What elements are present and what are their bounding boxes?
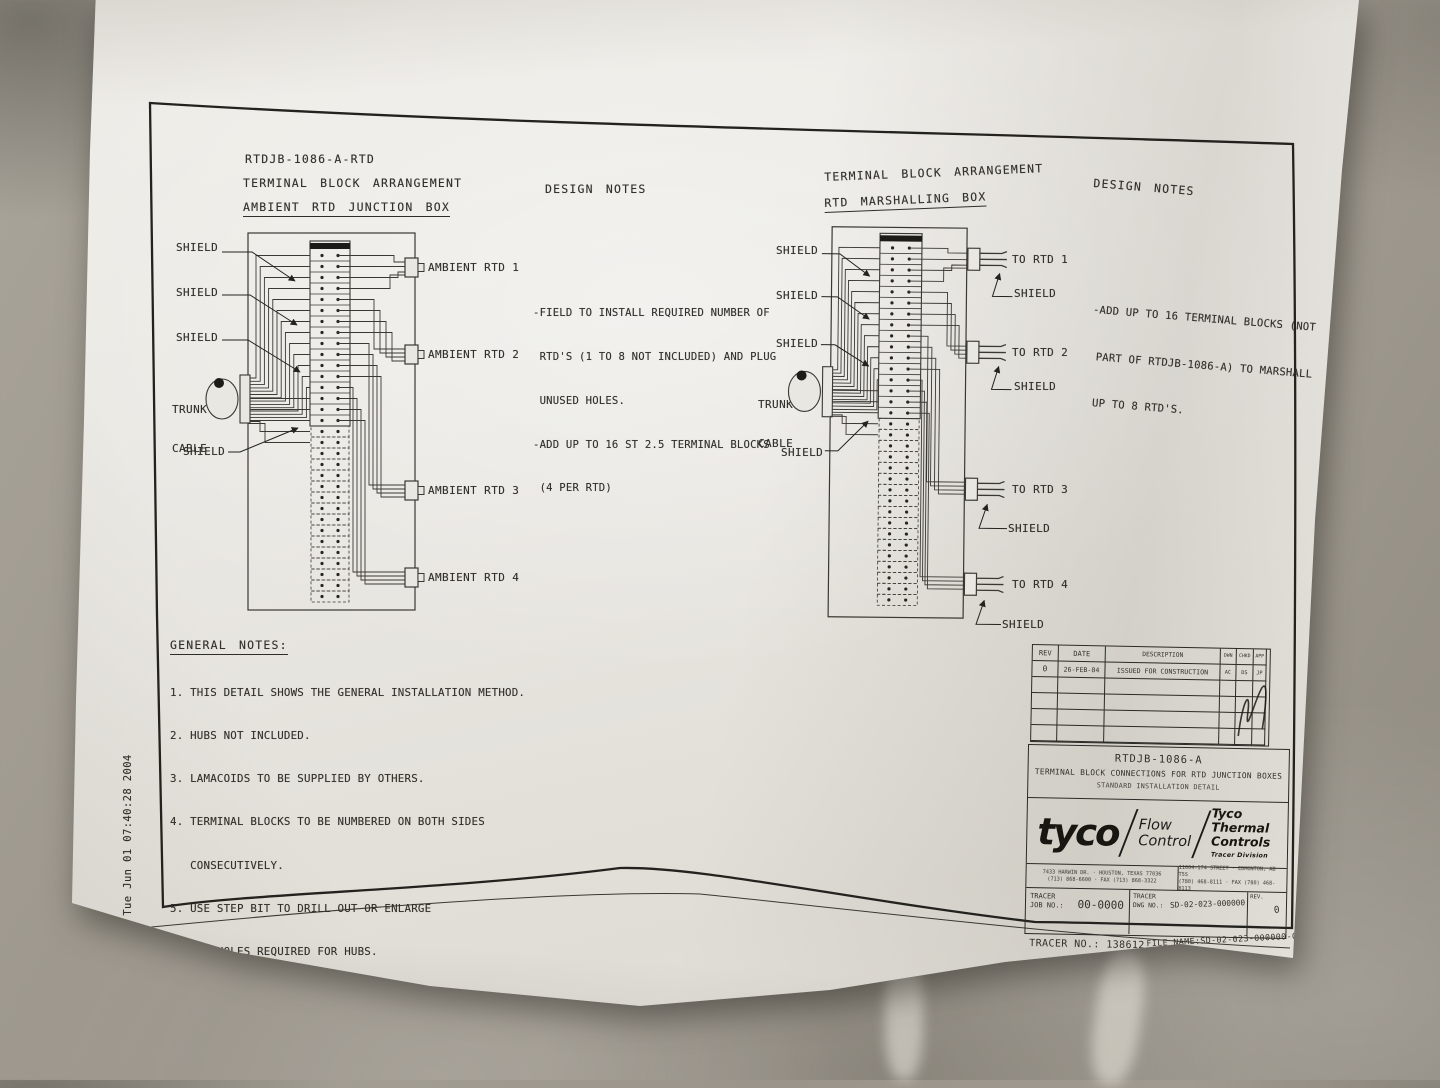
note-line: UNUSED HOLES.	[533, 394, 776, 409]
empty-cell	[1058, 694, 1105, 711]
job-label: TRACER	[1030, 892, 1064, 901]
junction-box-diagram	[160, 225, 530, 625]
note-line: -ADD UP TO 16 ST 2.5 TERMINAL BLOCKS	[533, 438, 776, 453]
general-note-line: 5. USE STEP BIT TO DRILL OUT OR ENLARGE	[170, 902, 525, 916]
left-arrangement-title: TERMINAL BLOCK ARRANGEMENT	[243, 176, 462, 190]
date-header: DATE	[1059, 646, 1106, 663]
rev-value: 0	[1032, 661, 1058, 677]
chkd-header: CHKD	[1237, 649, 1254, 665]
note-line: (4 PER RTD)	[533, 481, 776, 496]
drawing-number: RTDJB-1086-A	[1029, 751, 1289, 768]
tyco-logo: tyco	[1037, 813, 1119, 852]
empty-cell	[1057, 710, 1104, 727]
address-line: (713) 868-6600 · FAX (713) 868-3322	[1047, 876, 1156, 885]
rev-cell-value: 0	[1274, 905, 1281, 916]
empty-cell	[1031, 709, 1057, 725]
address-edmonton: 11004-174 STREET · EDMONTON, AB T5S (780…	[1177, 867, 1286, 893]
company-line: Controls	[1211, 835, 1287, 850]
drawing-subtitle: STANDARD INSTALLATION DETAIL	[1028, 780, 1288, 793]
approval-signature-scribble	[1220, 664, 1286, 751]
paper-sheet-shadow: Tue Jun 01 07:40:28 2004 RTDJB-1086-A-RT…	[0, 0, 1440, 1080]
job-row: TRACER JOB NO.: 00-0000 TRACER DWG NO.: …	[1025, 887, 1286, 937]
dwg-label: DWG NO.:	[1133, 902, 1164, 911]
drawing-title: TERMINAL BLOCK CONNECTIONS FOR RTD JUNCT…	[1028, 767, 1288, 781]
plot-timestamp: Tue Jun 01 07:40:28 2004	[122, 754, 134, 915]
company-subline: Tracer Division	[1211, 849, 1287, 864]
logo-divider	[1118, 809, 1138, 857]
rev-header: REV	[1033, 645, 1059, 661]
empty-cell	[1058, 678, 1105, 695]
general-notes-list: 1. THIS DETAIL SHOWS THE GENERAL INSTALL…	[170, 657, 525, 988]
logo-row: tyco Flow Control Tyco Thermal Controls …	[1027, 797, 1288, 869]
marshalling-box-diagram	[748, 218, 1152, 652]
paper-sheet: Tue Jun 01 07:40:28 2004 RTDJB-1086-A-RT…	[0, 0, 1440, 1080]
left-design-notes: -FIELD TO INSTALL REQUIRED NUMBER OF RTD…	[533, 277, 776, 525]
tyco-thermal-wordmark: Tyco Thermal Controls Tracer Division	[1211, 807, 1288, 864]
note-line: RTD'S (1 TO 8 NOT INCLUDED) AND PLUG	[533, 350, 776, 365]
date-value: 26-FEB-04	[1058, 662, 1105, 679]
empty-cell	[1032, 693, 1058, 709]
empty-cell	[1104, 726, 1219, 744]
empty-cell	[1031, 725, 1057, 741]
general-note-line: 4. TERMINAL BLOCKS TO BE NUMBERED ON BOT…	[170, 815, 525, 829]
general-note-line: 3. LAMACOIDS TO BE SUPPLIED BY OTHERS.	[170, 772, 525, 786]
general-note-line: ANY HOLES REQUIRED FOR HUBS.	[170, 945, 525, 959]
company-line: Tyco Thermal	[1211, 807, 1288, 836]
rev-cell: REV. 0	[1246, 892, 1286, 937]
left-box-title: AMBIENT RTD JUNCTION BOX	[243, 200, 450, 217]
flow-control-wordmark: Flow Control	[1138, 817, 1191, 850]
tracer-no-footer: TRACER NO.: 138612	[1029, 938, 1145, 951]
job-no-value: 00-0000	[1077, 898, 1124, 912]
dwg-no-value: SD-02-023-000000	[1170, 898, 1245, 909]
empty-cell	[1057, 726, 1104, 743]
left-design-notes-title: DESIGN NOTES	[545, 182, 646, 196]
general-note-line: 2. HUBS NOT INCLUDED.	[170, 729, 525, 743]
rev-cell-label: REV.	[1250, 894, 1264, 900]
dwg-label: TRACER	[1133, 893, 1164, 902]
logo-divider	[1191, 810, 1211, 858]
flow-line: Control	[1138, 833, 1191, 850]
dwn-header: DWN	[1221, 649, 1237, 665]
title-block: REV DATE DESCRIPTION DWN CHKD APP 0 26-F…	[1024, 642, 1293, 959]
note-line: -FIELD TO INSTALL REQUIRED NUMBER OF	[533, 306, 776, 321]
general-note-line: 1. THIS DETAIL SHOWS THE GENERAL INSTALL…	[170, 686, 525, 700]
tracer-dwg-no-cell: TRACER DWG NO.: SD-02-023-000000	[1128, 890, 1247, 936]
general-notes-title: GENERAL NOTES:	[170, 638, 288, 655]
general-note-line: CONSECUTIVELY.	[170, 859, 525, 873]
job-label: JOB NO.:	[1030, 901, 1064, 910]
app-header: APP	[1254, 649, 1267, 665]
left-part-number: RTDJB-1086-A-RTD	[245, 152, 375, 166]
title-block-main: RTDJB-1086-A TERMINAL BLOCK CONNECTIONS …	[1024, 744, 1290, 939]
empty-cell	[1032, 677, 1058, 693]
flow-line: Flow	[1139, 817, 1192, 834]
tracer-job-no-cell: TRACER JOB NO.: 00-0000	[1025, 888, 1129, 934]
